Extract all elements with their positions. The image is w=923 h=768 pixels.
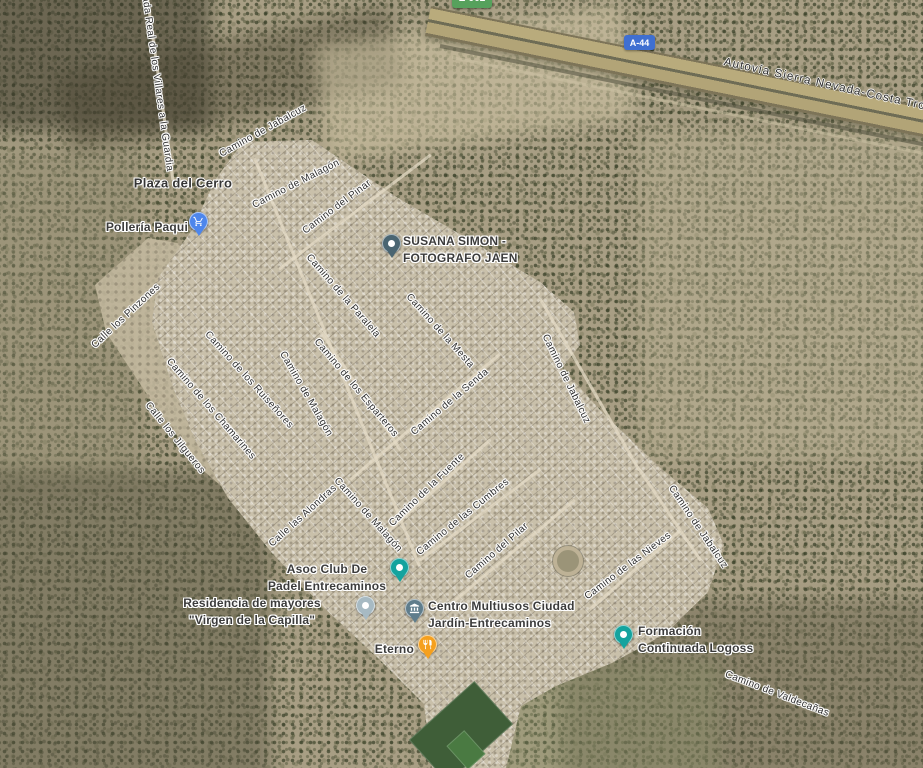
terrain-light — [640, 130, 923, 460]
residencia-virgen-de-la-capilla-dot-pin-icon[interactable] — [356, 596, 375, 615]
map-canvas[interactable]: Cañada Real de los Villares a la Guardia… — [0, 0, 923, 768]
centro-multiusos-ciudad-jardin-museum-pin-icon[interactable] — [405, 599, 424, 618]
formacion-continuada-logoss-dot-pin-icon[interactable] — [614, 625, 633, 644]
formacion-continuada-logoss-label[interactable]: FormaciónContinuada Logoss — [638, 623, 753, 657]
dot-glyph — [382, 234, 401, 253]
asoc-club-padel-entrecaminos-dot-pin-icon[interactable] — [390, 558, 409, 577]
dot-glyph — [356, 596, 375, 615]
dot-glyph — [390, 558, 409, 577]
route-badge-a44-text: A-44 — [630, 38, 650, 48]
centro-multiusos-ciudad-jardin-label[interactable]: Centro Multiusos CiudadJardín-Entrecamin… — [428, 598, 575, 632]
eterno-label[interactable]: Eterno — [375, 641, 414, 658]
cart-glyph — [189, 212, 208, 231]
place-label-plaza-del-cerro[interactable]: Plaza del Cerro — [134, 176, 232, 191]
residencia-virgen-de-la-capilla-label[interactable]: Residencia de mayores"Virgen de la Capil… — [183, 595, 321, 629]
eterno-restaurant-pin-icon[interactable] — [418, 635, 437, 654]
susana-simon-fotografo-label[interactable]: SUSANA SIMON -FOTOGRAFO JAEN — [403, 233, 518, 267]
restaurant-glyph — [418, 635, 437, 654]
museum-glyph — [405, 599, 424, 618]
roundabout — [553, 546, 583, 576]
route-badge-e902: E-902 — [452, 0, 492, 8]
route-badge-a44: A-44 — [624, 35, 655, 50]
route-badge-e902-text: E-902 — [459, 0, 486, 4]
polleria-paqui-cart-pin-icon[interactable] — [189, 212, 208, 231]
asoc-club-padel-entrecaminos-label[interactable]: Asoc Club DePadel Entrecaminos — [268, 561, 386, 595]
polleria-paqui-label[interactable]: Pollería Paqui — [106, 219, 188, 236]
dot-glyph — [614, 625, 633, 644]
susana-simon-fotografo-dot-pin-icon[interactable] — [382, 234, 401, 253]
